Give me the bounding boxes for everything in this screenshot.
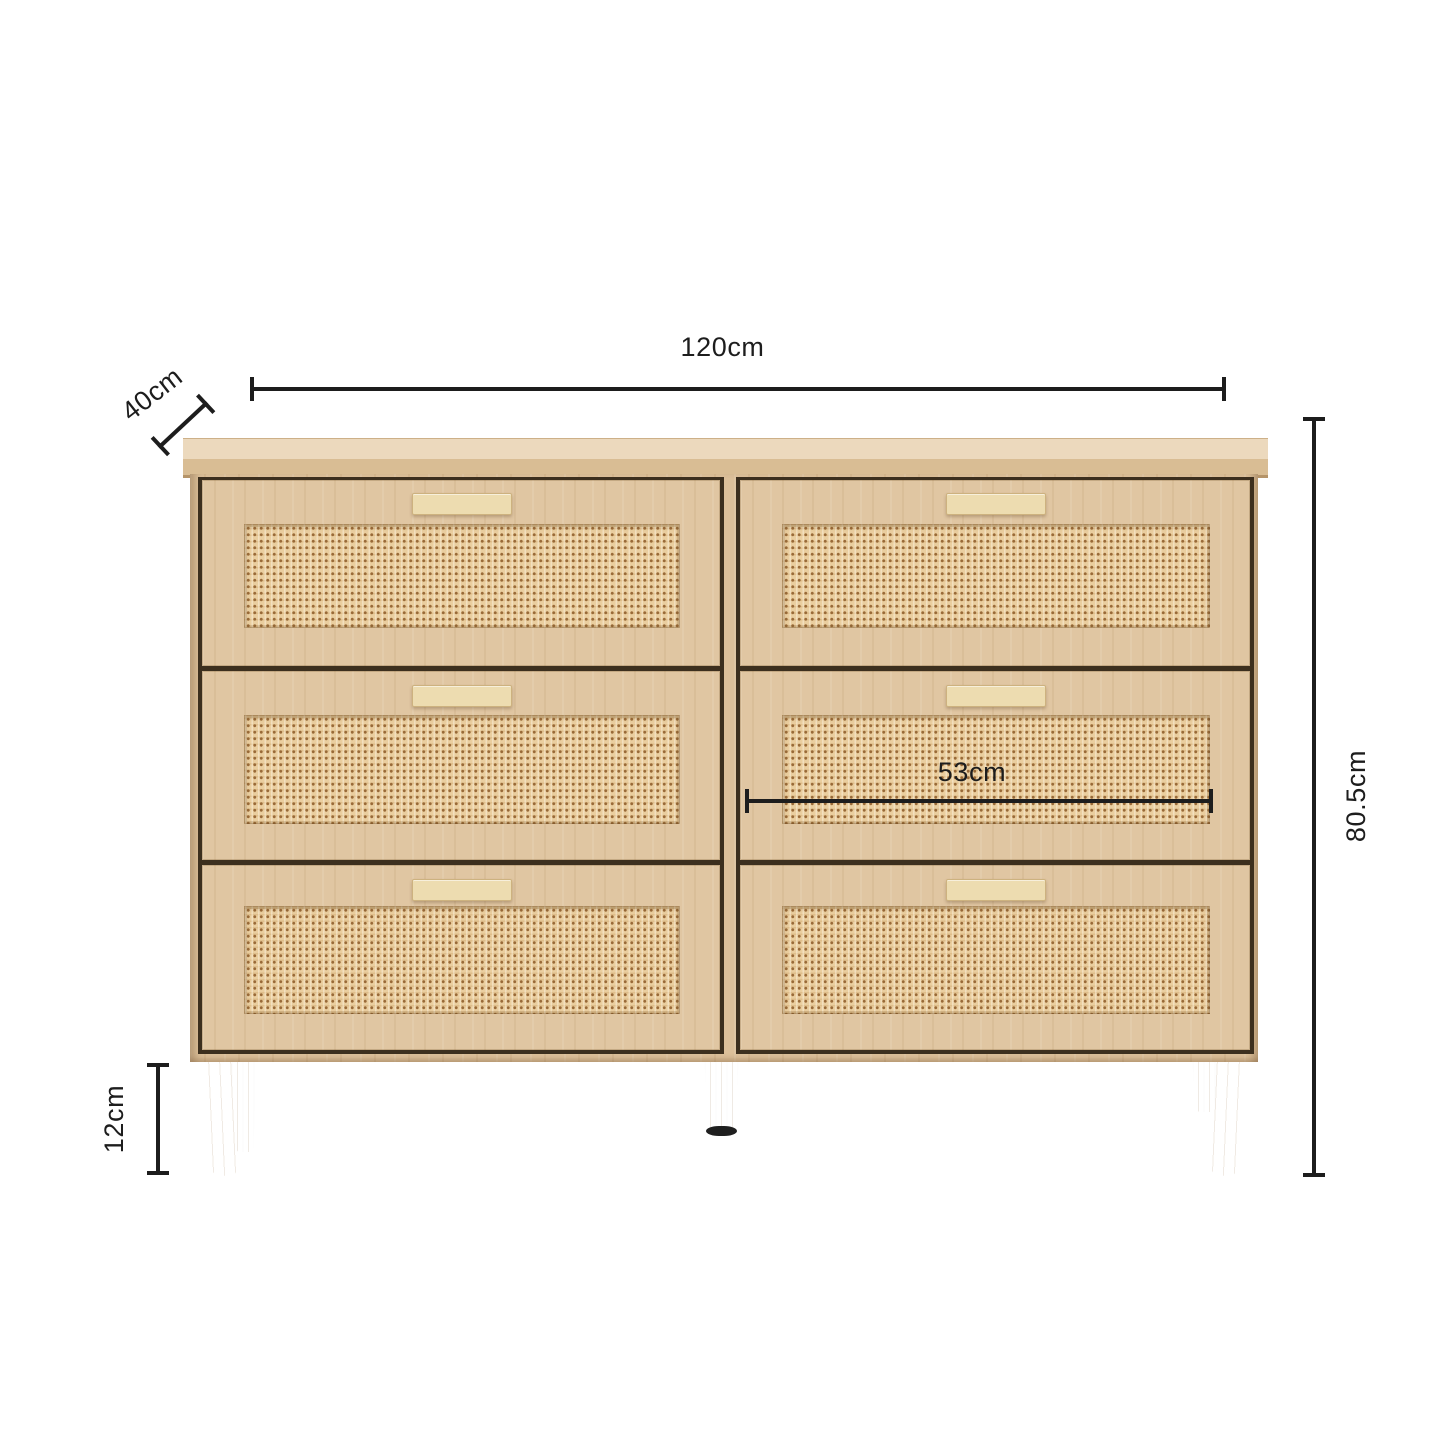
center-rear-leg xyxy=(704,1058,739,1132)
drawer-bottom-left-handle xyxy=(412,879,512,901)
drawer-bottom-right-handle xyxy=(946,879,1046,901)
drawer-top-right-handle xyxy=(946,493,1046,515)
product-dimension-diagram: 120cm 40cm 80.5cm 53cm 12cm xyxy=(0,0,1445,1445)
height-dimension-line xyxy=(1312,417,1316,1177)
drawer-width-dimension-line xyxy=(745,799,1213,803)
height-dimension-label: 80.5cm xyxy=(1341,736,1371,856)
center-leg-foot-glide xyxy=(706,1126,737,1136)
drawer-top-left-handle xyxy=(412,493,512,515)
cabinet-top-panel xyxy=(183,438,1268,478)
leg-height-dimension-label: 12cm xyxy=(99,1064,129,1174)
drawer-top-right-rattan-panel xyxy=(782,524,1210,628)
drawer-top-left-rattan-panel xyxy=(244,524,680,628)
depth-dimension-label: 40cm xyxy=(95,345,208,443)
front-left-leg xyxy=(202,1057,242,1176)
drawer-middle-left-handle xyxy=(412,685,512,707)
drawer-width-dimension-label: 53cm xyxy=(912,757,1032,787)
drawer-middle-right-handle xyxy=(946,685,1046,707)
drawer-bottom-right-rattan-panel xyxy=(782,906,1210,1014)
drawer-bottom-left-rattan-panel xyxy=(244,906,680,1014)
leg-height-dimension-line xyxy=(156,1063,160,1175)
front-right-leg xyxy=(1206,1057,1246,1176)
width-dimension-line xyxy=(250,387,1226,391)
drawer-middle-left-rattan-panel xyxy=(244,715,680,824)
width-dimension-label: 120cm xyxy=(640,332,805,362)
